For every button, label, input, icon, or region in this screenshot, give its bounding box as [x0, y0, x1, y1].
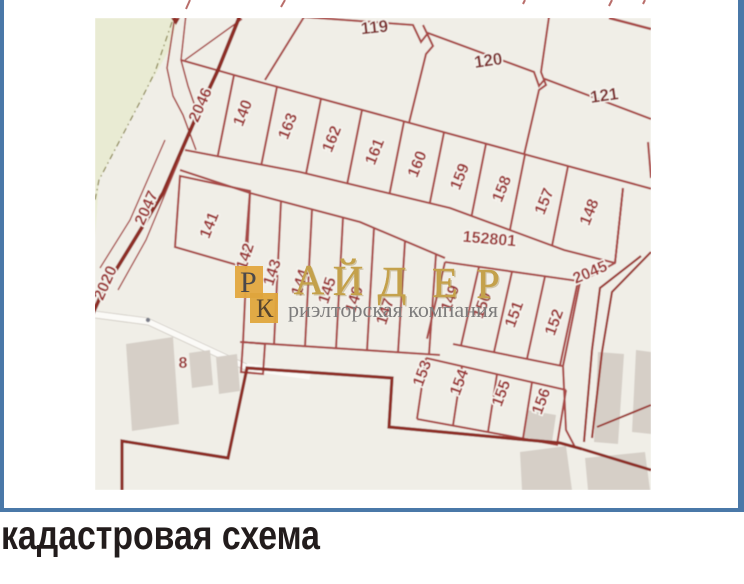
- svg-text:121: 121: [589, 84, 620, 107]
- svg-text:120: 120: [473, 49, 504, 72]
- svg-text:К: К: [256, 294, 274, 323]
- svg-text:кадастровая схема: кадастровая схема: [1, 512, 321, 558]
- svg-text:8: 8: [179, 355, 188, 372]
- svg-text:риэлторская компания: риэлторская компания: [288, 297, 498, 322]
- svg-text:119: 119: [360, 17, 389, 39]
